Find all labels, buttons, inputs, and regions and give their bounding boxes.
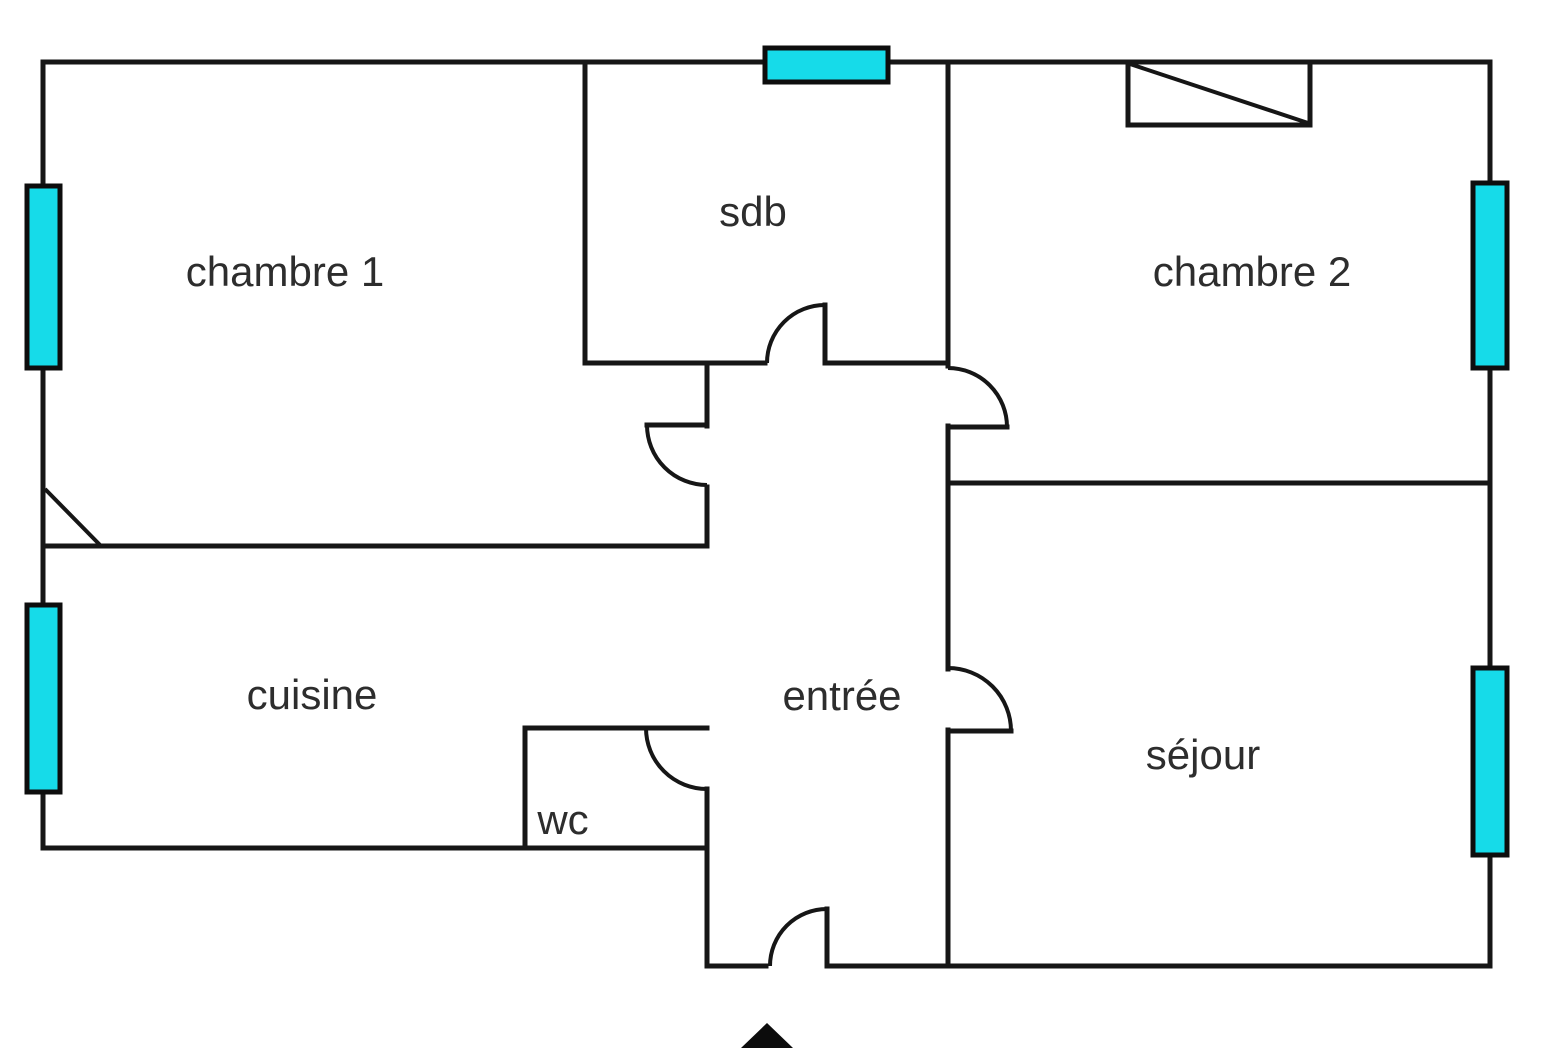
sejour-door-arc [948, 668, 1011, 731]
chambre1-window [27, 186, 60, 368]
sejour-window [1473, 668, 1507, 855]
floor-plan-drawing [0, 0, 1566, 1048]
chambre2-window [1473, 183, 1507, 368]
chambre1-door-arc [647, 425, 707, 485]
sdb-door-arc [767, 305, 825, 363]
room-label-sdb: sdb [719, 188, 787, 236]
floor-plan-canvas: chambre 1 sdb chambre 2 cuisine entrée w… [0, 0, 1566, 1048]
room-label-wc: wc [537, 796, 588, 844]
entrance-door-arc [770, 909, 827, 966]
sdb-window [765, 48, 888, 82]
room-label-entree: entrée [782, 672, 901, 720]
room-label-sejour: séjour [1146, 731, 1260, 779]
room-label-cuisine: cuisine [247, 671, 378, 719]
entrance-arrow-icon [741, 1023, 793, 1048]
corner-door-diagonal [45, 489, 101, 546]
chambre2-door-arc [948, 368, 1007, 427]
cuisine-window [27, 605, 60, 792]
room-label-chambre-1: chambre 1 [186, 248, 384, 296]
wc-door-arc [646, 728, 707, 789]
closet-diagonal [1130, 64, 1308, 123]
room-label-chambre-2: chambre 2 [1153, 248, 1351, 296]
